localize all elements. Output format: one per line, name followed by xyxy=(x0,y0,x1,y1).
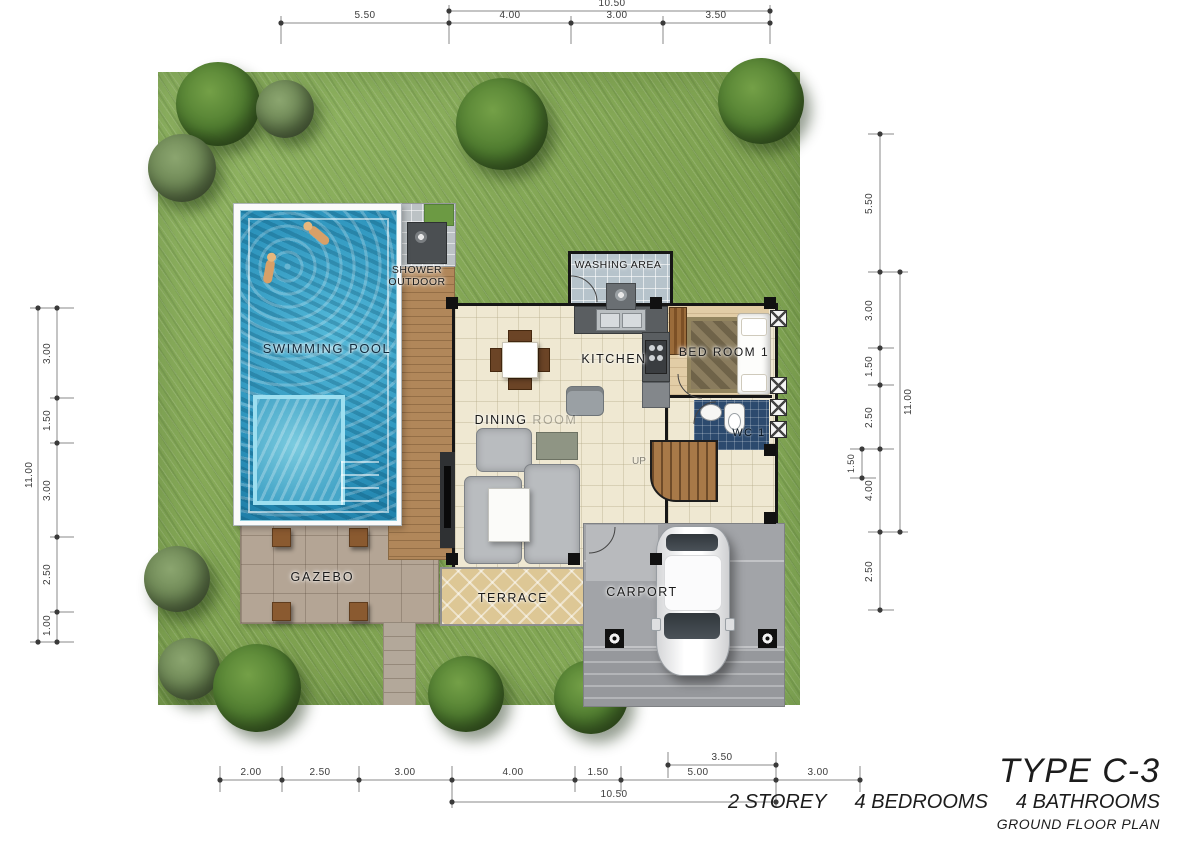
dim-left-seg: 3.00 xyxy=(42,468,53,512)
tree xyxy=(213,644,301,732)
shower-label-line1: SHOWER xyxy=(376,264,458,276)
dim-bottom-seg: 3.00 xyxy=(788,767,848,778)
bedroom1-label: BED ROOM 1 xyxy=(674,345,774,359)
gazebo-label: GAZEBO xyxy=(250,570,395,584)
dim-top-seg: 4.00 xyxy=(480,10,540,21)
dim-right-seg: 2.50 xyxy=(864,549,875,593)
gazebo-post xyxy=(349,528,368,547)
window-hatch xyxy=(770,310,787,327)
dim-bottom-carport-width: 3.50 xyxy=(692,752,752,763)
sofa-right xyxy=(524,464,580,564)
car-mirror xyxy=(651,618,661,631)
column xyxy=(446,297,458,309)
car-rear-window xyxy=(666,534,718,551)
dining-set xyxy=(490,330,548,388)
dining-chair xyxy=(508,378,532,390)
sofa-armchair xyxy=(476,428,532,472)
washing-area-label: WASHING AREA xyxy=(572,259,664,271)
tree xyxy=(158,638,220,700)
dim-bottom-seg: 4.00 xyxy=(483,767,543,778)
tree xyxy=(428,656,504,732)
wc-sink xyxy=(700,404,722,421)
gazebo-post xyxy=(272,602,291,621)
shower-outdoor-label: SHOWER OUTDOOR xyxy=(376,264,458,288)
dim-bottom-seg: 1.50 xyxy=(568,767,628,778)
gazebo-post xyxy=(349,602,368,621)
column xyxy=(764,512,776,524)
side-table xyxy=(536,432,578,460)
spec-storey: 2 STOREY xyxy=(728,791,827,813)
spec-bedrooms: 4 BEDROOMS xyxy=(855,791,988,813)
tv-screen xyxy=(444,466,451,528)
dim-bottom-total: 10.50 xyxy=(584,789,644,800)
window-hatch xyxy=(770,399,787,416)
tree xyxy=(456,78,548,170)
window-hatch xyxy=(770,377,787,394)
dim-left-seg: 3.00 xyxy=(42,331,53,375)
garden-path xyxy=(383,622,416,705)
dim-bottom-seg: 2.50 xyxy=(290,767,350,778)
sink-basin xyxy=(600,313,620,328)
dim-left-seg: 1.50 xyxy=(42,398,53,442)
carport-label: CARPORT xyxy=(592,585,692,599)
gazebo-post xyxy=(272,528,291,547)
dim-top-total: 10.50 xyxy=(582,0,642,9)
dining-chair xyxy=(508,330,532,342)
column xyxy=(650,297,662,309)
dining-label-text: DINING xyxy=(475,413,528,427)
tree xyxy=(144,546,210,612)
dim-right-seg: 3.00 xyxy=(864,288,875,332)
dim-right-total: 11.00 xyxy=(903,375,914,429)
dining-label: DININGROOM xyxy=(466,413,586,427)
pool-water xyxy=(240,210,397,521)
column xyxy=(764,444,776,456)
terrace-label: TERRACE xyxy=(452,591,574,605)
carport-post xyxy=(605,629,624,648)
dim-top-seg: 5.50 xyxy=(335,10,395,21)
dining-table xyxy=(502,342,538,378)
pillow xyxy=(741,374,767,392)
swimming-pool-label: SWIMMING POOL xyxy=(247,341,407,356)
plan-specs: 2 STOREY4 BEDROOMS4 BATHROOMS xyxy=(728,791,1160,814)
dim-bottom-seg: 2.00 xyxy=(221,767,281,778)
dim-right-seg: 2.50 xyxy=(864,395,875,439)
plan-type-title: TYPE C-3 xyxy=(999,752,1160,791)
swimmer xyxy=(262,259,275,284)
up-label: UP xyxy=(628,456,650,467)
dim-right-seg: 4.00 xyxy=(864,468,875,512)
swimming-pool xyxy=(233,203,402,526)
dim-right-seg: 1.50 xyxy=(864,344,875,388)
dim-bottom-seg: 5.00 xyxy=(668,767,728,778)
entry-porch xyxy=(586,525,658,581)
pillow xyxy=(741,318,767,336)
dim-left-seg: 1.00 xyxy=(42,603,53,647)
burner xyxy=(649,345,655,351)
dim-left-total: 11.00 xyxy=(24,448,35,502)
burner xyxy=(657,345,663,351)
car-windshield xyxy=(664,613,720,639)
kitchen-label: KITCHEN xyxy=(568,352,660,366)
tree xyxy=(256,80,314,138)
tree xyxy=(718,58,804,144)
sink-basin xyxy=(622,313,642,328)
window-hatch xyxy=(770,421,787,438)
pool-shallow-area xyxy=(253,395,345,505)
swimmer xyxy=(307,224,331,246)
shower-fixture xyxy=(407,222,447,264)
column xyxy=(446,553,458,565)
carport-post xyxy=(758,629,777,648)
car-roof xyxy=(664,555,722,611)
staircase xyxy=(650,440,718,502)
coffee-table xyxy=(488,488,530,542)
car-mirror xyxy=(725,618,735,631)
dim-top-seg: 3.50 xyxy=(686,10,746,21)
washing-machine xyxy=(606,283,636,310)
column xyxy=(568,553,580,565)
pool-steps xyxy=(341,461,379,505)
armchair xyxy=(566,386,604,416)
tree xyxy=(148,134,216,202)
dim-top-seg: 3.00 xyxy=(587,10,647,21)
floor-plan-canvas: SWIMMING POOL SHOWER OUTDOOR WASHING ARE… xyxy=(0,0,1200,848)
dining-chair xyxy=(538,348,550,372)
car xyxy=(656,526,728,674)
dim-right-seg: 5.50 xyxy=(864,181,875,225)
bedroom-wc-wall xyxy=(665,395,772,398)
dining-chair xyxy=(490,348,502,372)
shower-label-line2: OUTDOOR xyxy=(376,276,458,288)
column xyxy=(764,297,776,309)
plan-subtitle: GROUND FLOOR PLAN xyxy=(997,816,1160,832)
kitchen-sink xyxy=(596,309,646,331)
tree xyxy=(176,62,260,146)
dim-bottom-seg: 3.00 xyxy=(375,767,435,778)
column xyxy=(650,553,662,565)
wc1-label: WC 1 xyxy=(726,427,772,439)
spec-bathrooms: 4 BATHROOMS xyxy=(1016,791,1160,813)
dim-left-seg: 2.50 xyxy=(42,552,53,596)
dining-label-faded: ROOM xyxy=(532,413,577,427)
refrigerator xyxy=(642,382,670,408)
dim-right-porch-depth: 1.50 xyxy=(846,441,856,485)
